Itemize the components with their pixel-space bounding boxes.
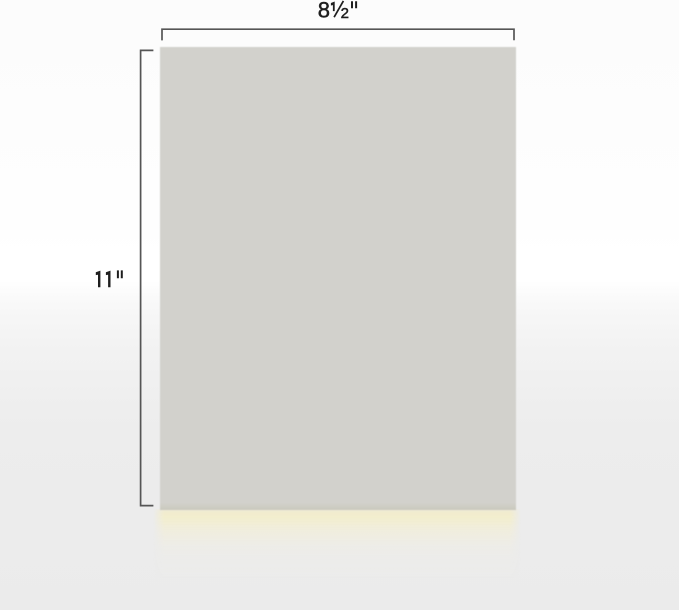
svg-text:2: 2: [341, 5, 349, 22]
svg-text:8: 8: [318, 0, 330, 23]
